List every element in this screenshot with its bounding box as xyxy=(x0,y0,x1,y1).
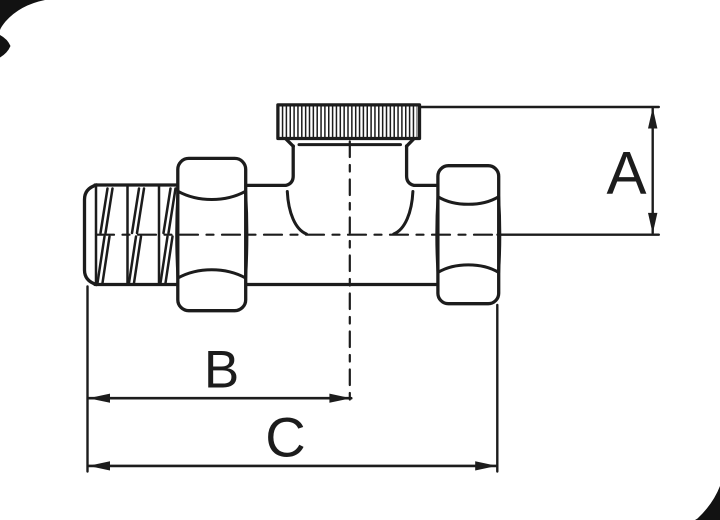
valve-dimension-drawing: A B C xyxy=(0,0,720,520)
corner-mark-bottom-right xyxy=(695,486,720,520)
dimension-b-label: B xyxy=(204,341,239,400)
dimension-a-label: A xyxy=(606,140,646,207)
drawing-canvas: A B C xyxy=(0,0,720,520)
valve-body xyxy=(246,139,439,285)
dim-b-arrow-right xyxy=(329,394,351,403)
body-top-edge-left xyxy=(246,146,294,185)
dimension-c-label: C xyxy=(265,406,305,469)
dim-a-arrow-down xyxy=(648,213,657,234)
corner-mark-top-left xyxy=(0,0,45,30)
dimension-b: B xyxy=(88,287,352,472)
body-top-edge-right xyxy=(407,146,439,185)
dim-c-arrow-right xyxy=(475,461,497,470)
thread-end-face xyxy=(85,185,97,285)
corner-mark-left-edge xyxy=(0,35,11,58)
knurled-cap xyxy=(278,105,420,139)
dim-b-arrow-left xyxy=(88,394,110,403)
dim-a-arrow-up xyxy=(648,108,657,129)
dimension-c: C xyxy=(88,305,497,472)
dim-c-arrow-left xyxy=(88,461,110,470)
